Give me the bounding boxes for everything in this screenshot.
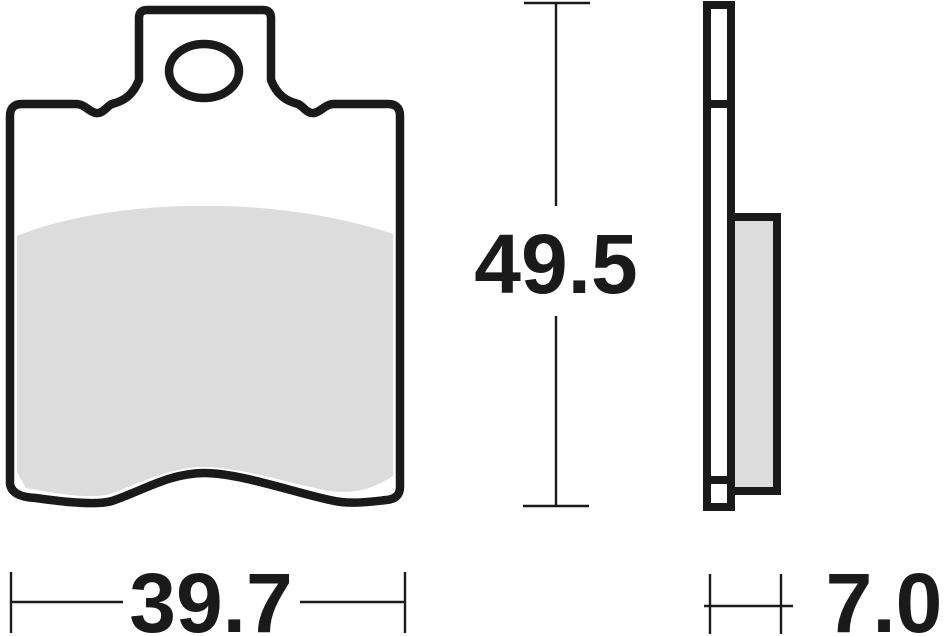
friction-material-side [731,217,777,491]
width-dimension-label: 39.7 [129,556,293,636]
thickness-dimension [704,574,793,634]
front-view [10,10,400,503]
brake-pad-drawing: 49.5 39.7 7.0 [0,0,945,636]
friction-material-front [17,206,393,496]
thickness-dimension-label: 7.0 [826,556,943,636]
side-view [704,5,777,507]
mounting-hole-icon [169,44,239,98]
technical-drawing-page: 49.5 39.7 7.0 [0,0,945,636]
height-dimension-label: 49.5 [474,217,638,311]
